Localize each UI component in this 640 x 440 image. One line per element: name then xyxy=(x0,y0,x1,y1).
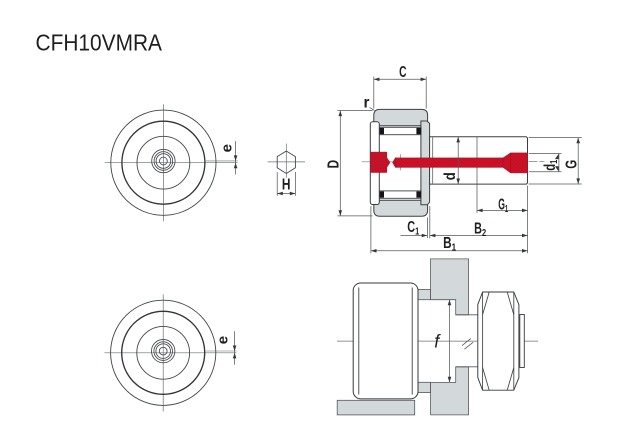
svg-text:G: G xyxy=(564,160,581,169)
svg-text:C: C xyxy=(399,64,406,81)
svg-text:d: d xyxy=(442,172,459,180)
svg-text:CFH10VMRA: CFH10VMRA xyxy=(36,29,163,55)
svg-text:e: e xyxy=(218,144,235,152)
svg-text:e: e xyxy=(214,336,231,344)
svg-text:r: r xyxy=(364,95,370,112)
svg-text:D: D xyxy=(326,160,343,169)
svg-text:H: H xyxy=(282,177,291,194)
